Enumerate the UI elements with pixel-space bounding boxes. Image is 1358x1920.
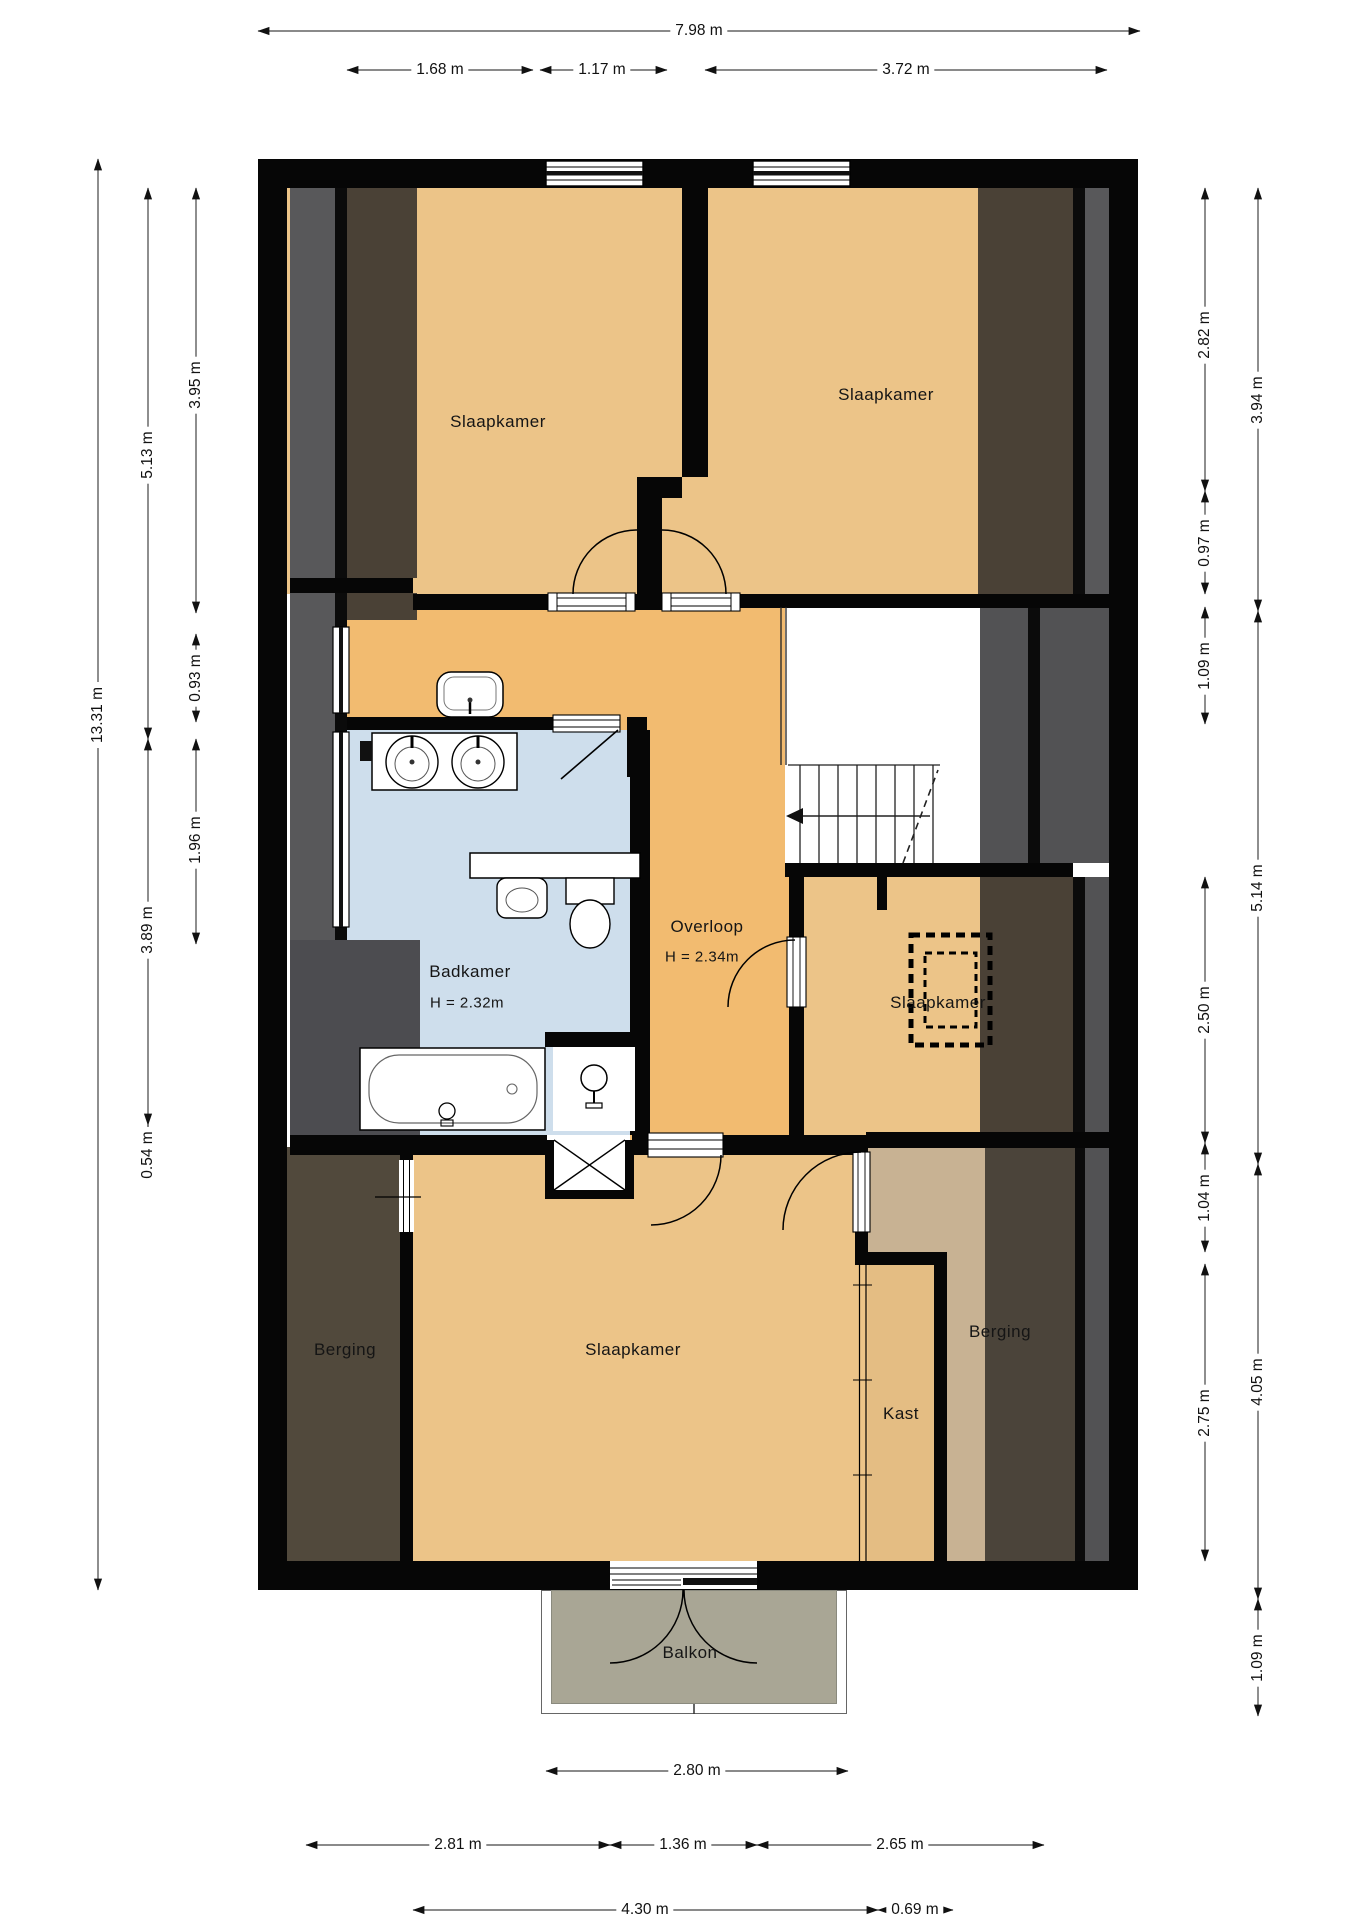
dim-bottom-mid-1: 2.81 m bbox=[429, 1836, 486, 1854]
roof-overlay-storage-right bbox=[985, 1140, 1075, 1561]
wall-post-between-doors bbox=[635, 594, 662, 610]
room-label-bedroom-bottom: Slaapkamer bbox=[585, 1340, 681, 1360]
dim-left-inner-2: 0.93 m bbox=[187, 649, 205, 706]
wall-door2-post-top bbox=[855, 1147, 868, 1152]
room-label-balcony: Balkon bbox=[663, 1643, 718, 1663]
room-label-closet: Kast bbox=[883, 1404, 919, 1424]
roof-band-brown-top-right bbox=[978, 188, 1073, 594]
wall-storage-left-east bbox=[400, 1147, 413, 1561]
wall-storage-right-north bbox=[866, 1132, 1109, 1148]
room-label-landing: Overloop bbox=[671, 917, 744, 937]
roof-band-brown-top-left bbox=[347, 188, 417, 578]
roof-band-gray-top-right bbox=[1085, 188, 1109, 594]
wall-bathroom-north bbox=[347, 717, 553, 730]
knee-wall-top-right bbox=[1073, 188, 1085, 594]
dim-right-outer-2: 5.14 m bbox=[1249, 859, 1267, 916]
floor-plan: Slaapkamer Slaapkamer Badkamer H = 2.32m… bbox=[0, 0, 1358, 1920]
dim-right-inner-4: 2.50 m bbox=[1196, 981, 1214, 1038]
dim-right-inner-3: 1.09 m bbox=[1196, 637, 1214, 694]
room-height-landing: H = 2.34m bbox=[665, 949, 739, 966]
outer-wall-top bbox=[258, 159, 1138, 188]
outer-wall-right bbox=[1109, 159, 1138, 1590]
room-height-bathroom: H = 2.32m bbox=[430, 995, 504, 1012]
dim-top-seg-3: 3.72 m bbox=[877, 61, 934, 79]
room-label-bedroom-top-right: Slaapkamer bbox=[838, 385, 934, 405]
dim-right-outer-4: 1.09 m bbox=[1249, 1629, 1267, 1686]
wall-bedroomTR-south bbox=[740, 594, 1109, 608]
dim-right-inner-5: 1.04 m bbox=[1196, 1169, 1214, 1226]
wall-landing-east-upper bbox=[789, 863, 804, 937]
wall-closet-east bbox=[934, 1252, 947, 1561]
outer-wall-bottom bbox=[258, 1561, 1138, 1590]
roof-band-gray-middle-right bbox=[1085, 877, 1109, 1135]
roof-band-gray-stair-right-1 bbox=[980, 607, 1028, 863]
dim-top-seg-1: 1.68 m bbox=[411, 61, 468, 79]
dim-left-inner-1: 3.95 m bbox=[187, 356, 205, 413]
knee-wall-stair-right bbox=[1028, 607, 1040, 863]
dim-top-seg-2: 1.17 m bbox=[573, 61, 630, 79]
outer-wall-left bbox=[258, 159, 287, 1590]
dim-bottom-low-1: 4.30 m bbox=[616, 1901, 673, 1919]
wall-stairwell-south bbox=[785, 863, 1073, 877]
dim-left-mid-1: 5.13 m bbox=[139, 426, 157, 483]
roof-band-brown-middle-right bbox=[980, 877, 1073, 1135]
wall-center-upper bbox=[682, 187, 708, 477]
wall-bedroomTL-south-a bbox=[290, 578, 413, 593]
room-label-storage-right: Berging bbox=[969, 1322, 1031, 1342]
wall-bottom-bedroom-north bbox=[723, 1135, 868, 1155]
dim-right-inner-1: 2.82 m bbox=[1196, 306, 1214, 363]
dim-left-inner-3: 1.96 m bbox=[187, 811, 205, 868]
roof-overlay-bathroom bbox=[290, 940, 420, 1135]
roof-band-brown-step bbox=[347, 593, 417, 620]
room-landing-floor bbox=[630, 730, 789, 1155]
dim-right-inner-6: 2.75 m bbox=[1196, 1384, 1214, 1441]
wall-bath-south-left bbox=[290, 1135, 547, 1155]
wall-bath-south-mid bbox=[632, 1135, 648, 1155]
wall-landing-east-lower bbox=[789, 1007, 804, 1140]
room-label-bedroom-top-left: Slaapkamer bbox=[450, 412, 546, 432]
dim-bottom-top: 2.80 m bbox=[668, 1762, 725, 1780]
wall-bedroomTL-south-b bbox=[413, 594, 548, 610]
dim-right-outer-3: 4.05 m bbox=[1249, 1353, 1267, 1410]
wall-door2-post-bottom bbox=[855, 1232, 868, 1252]
wall-stub-middle-bedroom bbox=[877, 877, 887, 910]
dim-top-total: 7.98 m bbox=[670, 22, 727, 40]
roof-band-gray-stair-right-2 bbox=[1040, 607, 1109, 863]
wall-center-lower bbox=[637, 477, 662, 594]
dim-bottom-low-2: 0.69 m bbox=[886, 1901, 943, 1919]
dim-left-total: 13.31 m bbox=[89, 682, 107, 748]
room-label-bedroom-middle: Slaapkamer bbox=[890, 993, 986, 1013]
wall-bathroom-east bbox=[630, 730, 650, 1135]
room-label-storage-left: Berging bbox=[314, 1340, 376, 1360]
roof-band-gray-bottom-right bbox=[1085, 1140, 1109, 1561]
knee-wall-bottom-right bbox=[1075, 1140, 1085, 1561]
dim-left-mid-2: 3.89 m bbox=[139, 901, 157, 958]
dim-bottom-mid-3: 2.65 m bbox=[871, 1836, 928, 1854]
dim-right-outer-1: 3.94 m bbox=[1249, 371, 1267, 428]
dim-right-inner-2: 0.97 m bbox=[1196, 514, 1214, 571]
room-label-bathroom: Badkamer bbox=[429, 962, 510, 982]
dim-bottom-mid-2: 1.36 m bbox=[654, 1836, 711, 1854]
dim-left-mid-3: 0.54 m bbox=[139, 1126, 157, 1183]
knee-wall-middle-right bbox=[1073, 877, 1085, 1135]
